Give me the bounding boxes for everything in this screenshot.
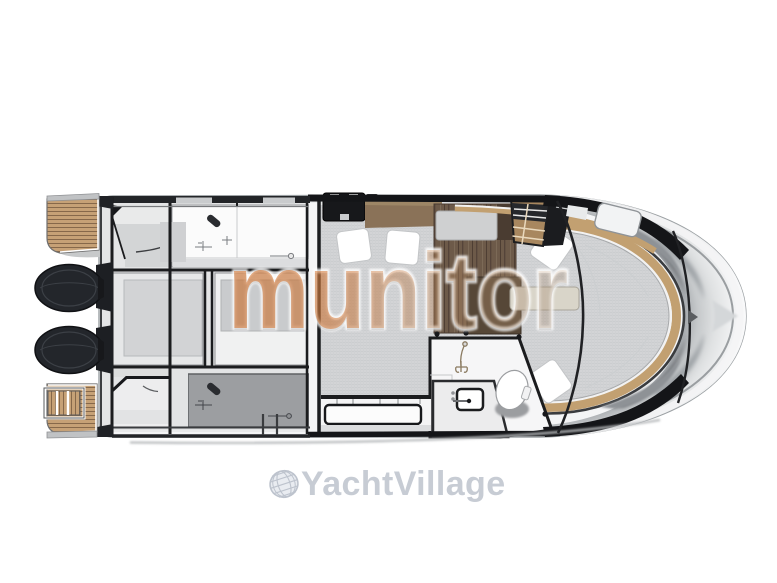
- svg-text:munitor: munitor: [228, 230, 568, 351]
- svg-text:YachtVillage: YachtVillage: [301, 465, 506, 503]
